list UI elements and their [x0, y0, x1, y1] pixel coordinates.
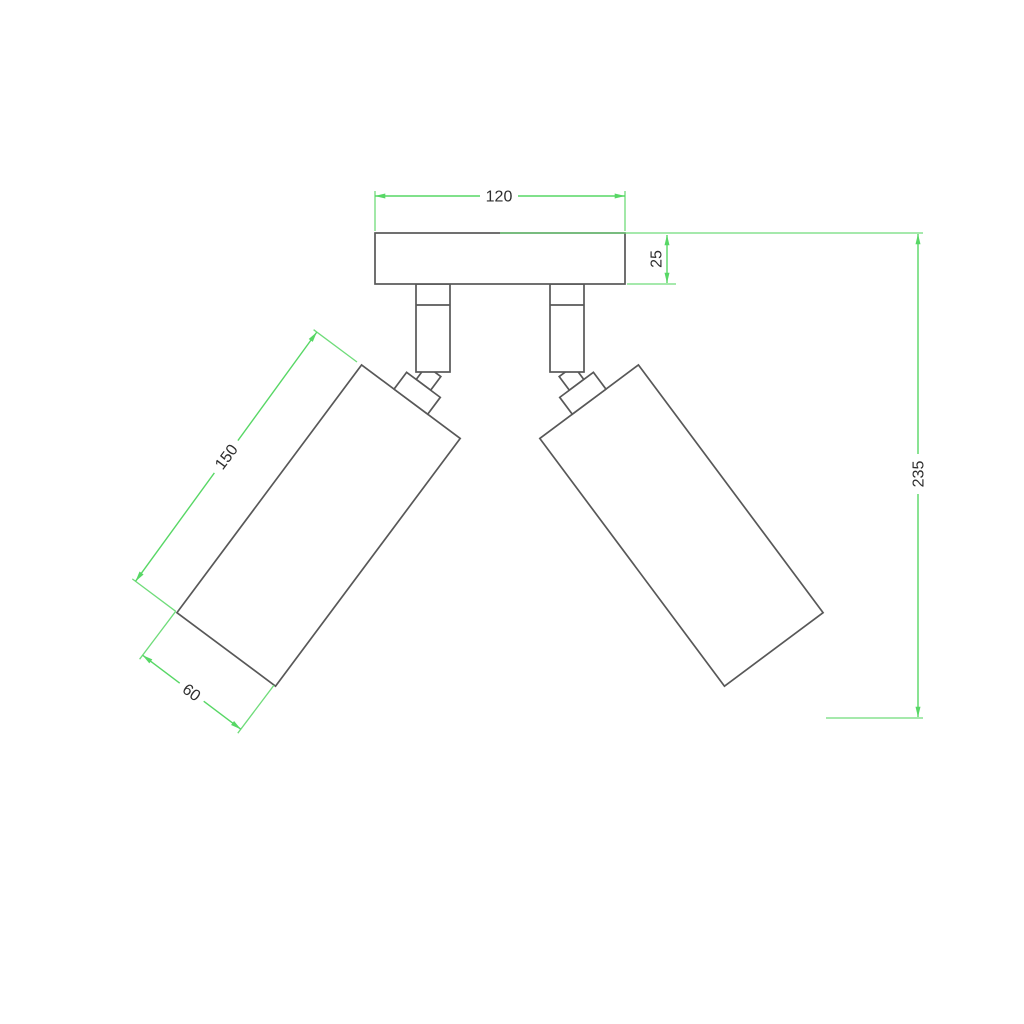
ext-line — [140, 611, 176, 659]
dimension-plate-thickness: 25 — [627, 235, 676, 284]
dimension-plate-width: 120 — [375, 188, 625, 231]
dim-label-plate-thickness: 25 — [649, 250, 666, 268]
ext-line — [238, 685, 274, 733]
technical-drawing-canvas: 120 25 235 — [0, 0, 1024, 1024]
right-spot-cylinder — [540, 365, 823, 686]
right-stem-body — [550, 284, 584, 372]
right-stem — [550, 284, 584, 372]
drawing-page: 120 25 235 — [0, 0, 1024, 1024]
dim-label-overall-height: 235 — [911, 461, 928, 488]
right-spot-head — [517, 334, 823, 686]
left-spot-cylinder — [177, 365, 460, 686]
left-stem — [416, 284, 450, 372]
ext-line — [132, 579, 175, 611]
left-spot-head — [177, 334, 483, 686]
mounting-plate — [375, 233, 625, 284]
left-stem-body — [416, 284, 450, 372]
ext-line — [314, 330, 357, 362]
dim-label-plate-width: 120 — [486, 189, 513, 206]
